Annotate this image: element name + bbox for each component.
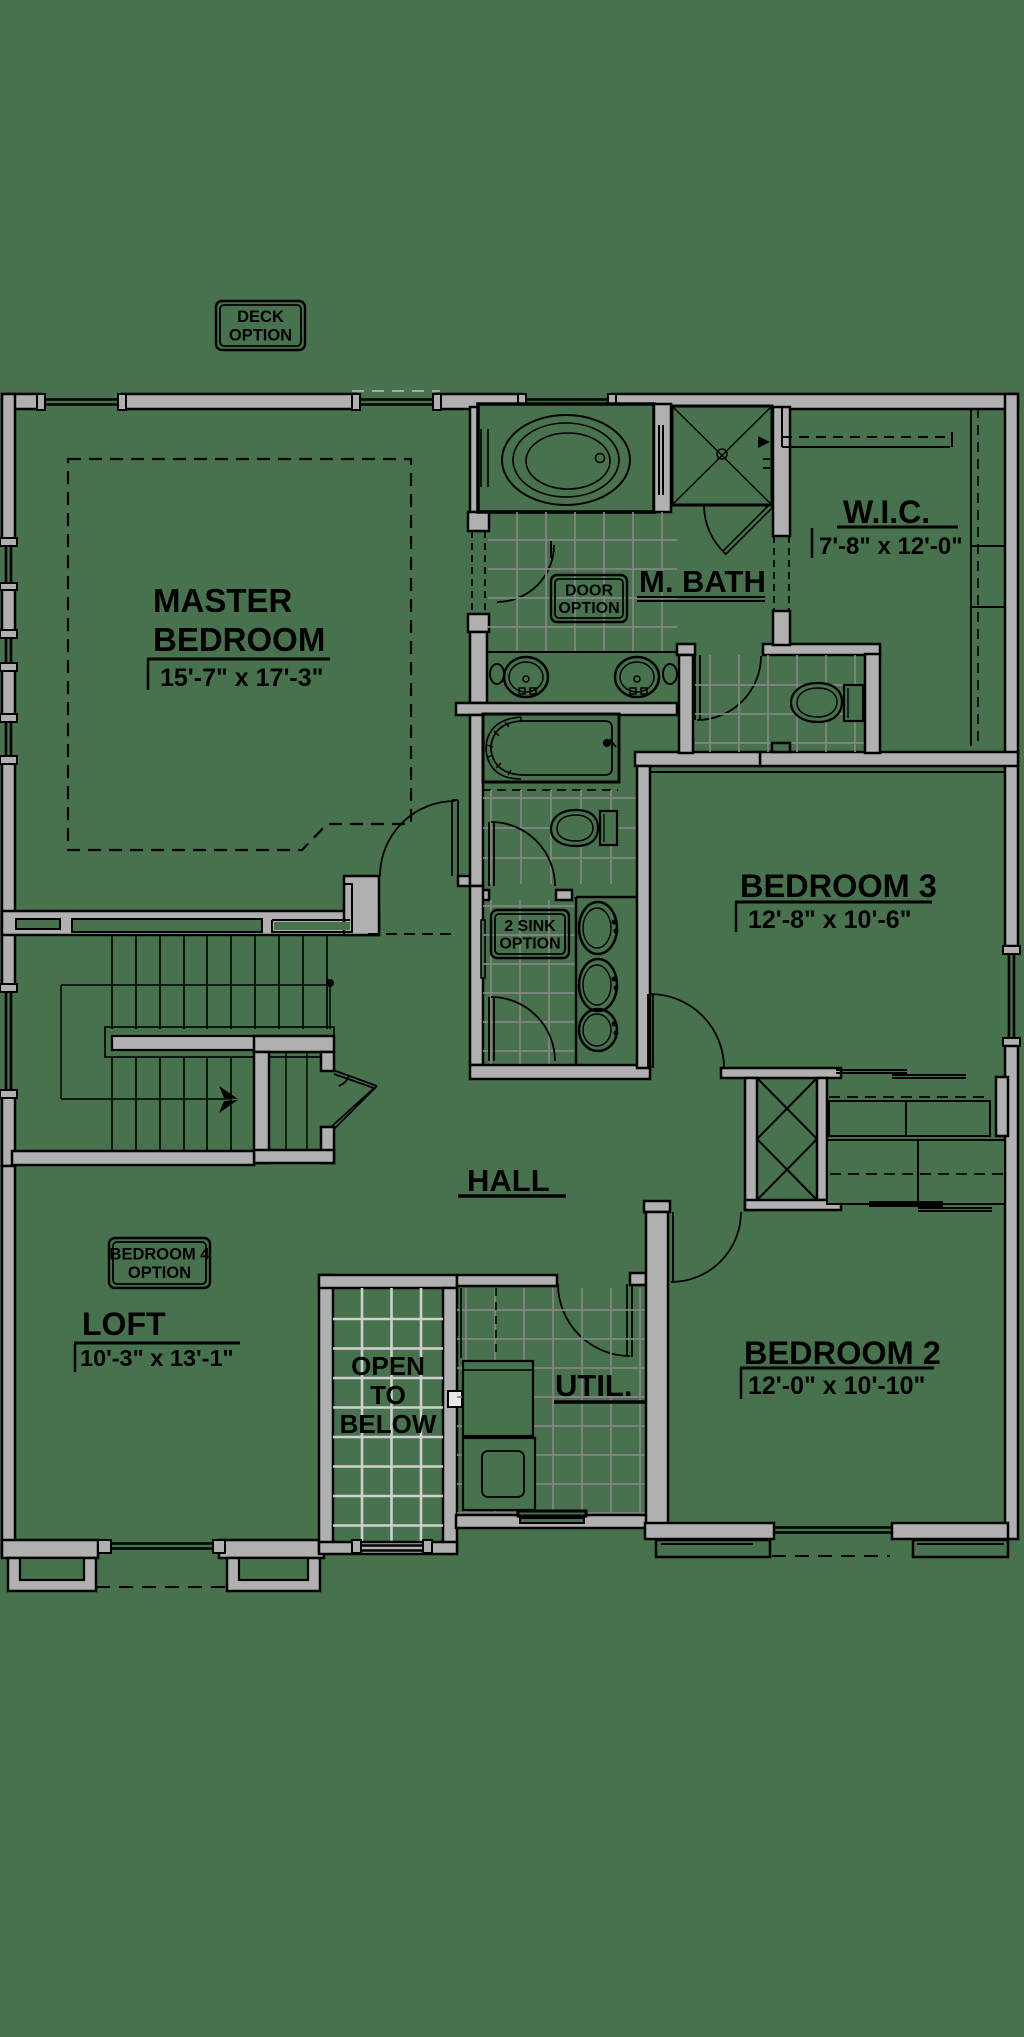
svg-text:2 SINK: 2 SINK — [504, 918, 556, 935]
svg-text:DOOR: DOOR — [565, 582, 613, 599]
svg-text:M. BATH: M. BATH — [639, 564, 766, 599]
svg-text:DECK: DECK — [237, 308, 284, 326]
svg-text:7'-8" x 12'-0": 7'-8" x 12'-0" — [819, 533, 963, 560]
svg-text:BEDROOM 4: BEDROOM 4 — [110, 1246, 211, 1264]
svg-text:OPEN: OPEN — [351, 1351, 425, 1381]
svg-text:OPTION: OPTION — [128, 1264, 191, 1282]
svg-text:OPTION: OPTION — [558, 600, 619, 617]
svg-text:UTIL.: UTIL. — [555, 1368, 633, 1403]
svg-text:BEDROOM 3: BEDROOM 3 — [740, 868, 937, 904]
svg-text:W.I.C.: W.I.C. — [843, 494, 930, 530]
svg-text:TO: TO — [370, 1380, 406, 1410]
svg-text:10'-3" x 13'-1": 10'-3" x 13'-1" — [80, 1345, 234, 1371]
svg-text:OPTION: OPTION — [229, 327, 292, 345]
svg-text:MASTER: MASTER — [153, 582, 293, 619]
svg-text:15'-7" x 17'-3": 15'-7" x 17'-3" — [160, 664, 323, 692]
svg-text:BELOW: BELOW — [340, 1409, 437, 1439]
svg-text:OPTION: OPTION — [499, 936, 560, 953]
svg-text:BEDROOM: BEDROOM — [153, 621, 325, 658]
svg-text:12'-0" x 10'-10": 12'-0" x 10'-10" — [748, 1372, 925, 1400]
svg-text:HALL: HALL — [467, 1163, 550, 1198]
svg-text:LOFT: LOFT — [82, 1306, 166, 1342]
svg-text:12'-8" x 10'-6": 12'-8" x 10'-6" — [748, 906, 911, 934]
svg-text:BEDROOM 2: BEDROOM 2 — [744, 1335, 941, 1371]
